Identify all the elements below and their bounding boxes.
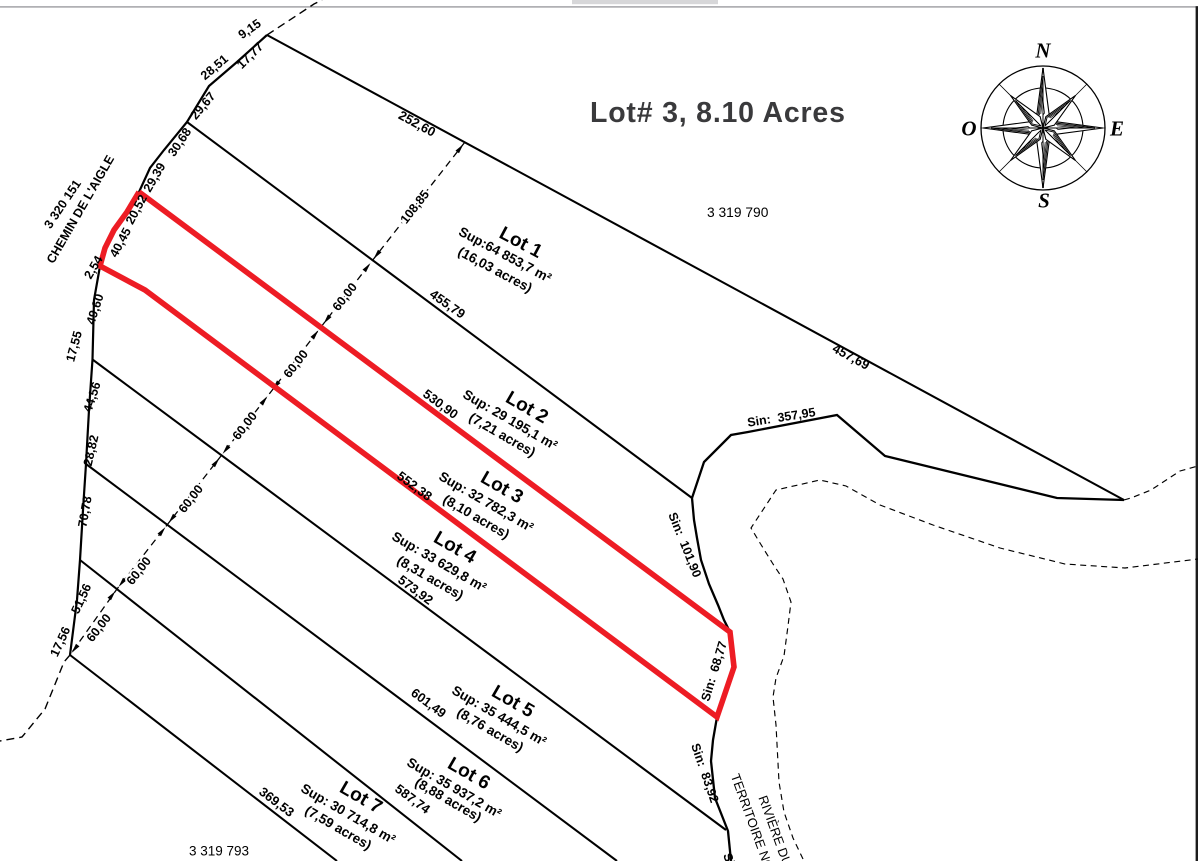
svg-text:108,85: 108,85 (398, 188, 433, 227)
svg-text:3 319 793: 3 319 793 (189, 844, 249, 859)
svg-text:Si: Si (720, 851, 737, 861)
svg-text:252,60: 252,60 (396, 107, 438, 139)
svg-text:60,00: 60,00 (124, 554, 154, 587)
svg-text:Lot# 3, 8.10 Acres: Lot# 3, 8.10 Acres (590, 97, 846, 129)
svg-text:60,00: 60,00 (176, 482, 206, 515)
svg-text:O: O (961, 116, 976, 140)
svg-text:457,69: 457,69 (830, 341, 872, 373)
svg-text:70,78: 70,78 (75, 495, 94, 528)
svg-text:S: S (1038, 188, 1050, 212)
svg-text:Sin: 83,92: Sin: 83,92 (688, 742, 721, 805)
svg-text:60,00: 60,00 (281, 347, 311, 380)
svg-text:552,38: 552,38 (394, 468, 435, 504)
svg-text:60,00: 60,00 (230, 409, 260, 442)
svg-text:9,15: 9,15 (236, 16, 264, 41)
svg-text:60,00: 60,00 (84, 611, 114, 644)
svg-text:28,51: 28,51 (198, 52, 231, 83)
svg-text:E: E (1109, 116, 1124, 140)
svg-text:601,49: 601,49 (408, 685, 449, 721)
svg-text:60,00: 60,00 (330, 280, 360, 313)
svg-text:17,55: 17,55 (63, 329, 85, 363)
svg-text:17,77: 17,77 (234, 40, 266, 72)
svg-text:N: N (1034, 38, 1051, 62)
svg-text:51,56: 51,56 (68, 582, 94, 616)
svg-text:28,82: 28,82 (81, 434, 102, 468)
svg-text:29,67: 29,67 (188, 89, 219, 122)
svg-text:49,60: 49,60 (84, 292, 107, 326)
svg-text:44,56: 44,56 (81, 380, 104, 414)
svg-text:3 319 790: 3 319 790 (707, 205, 769, 220)
